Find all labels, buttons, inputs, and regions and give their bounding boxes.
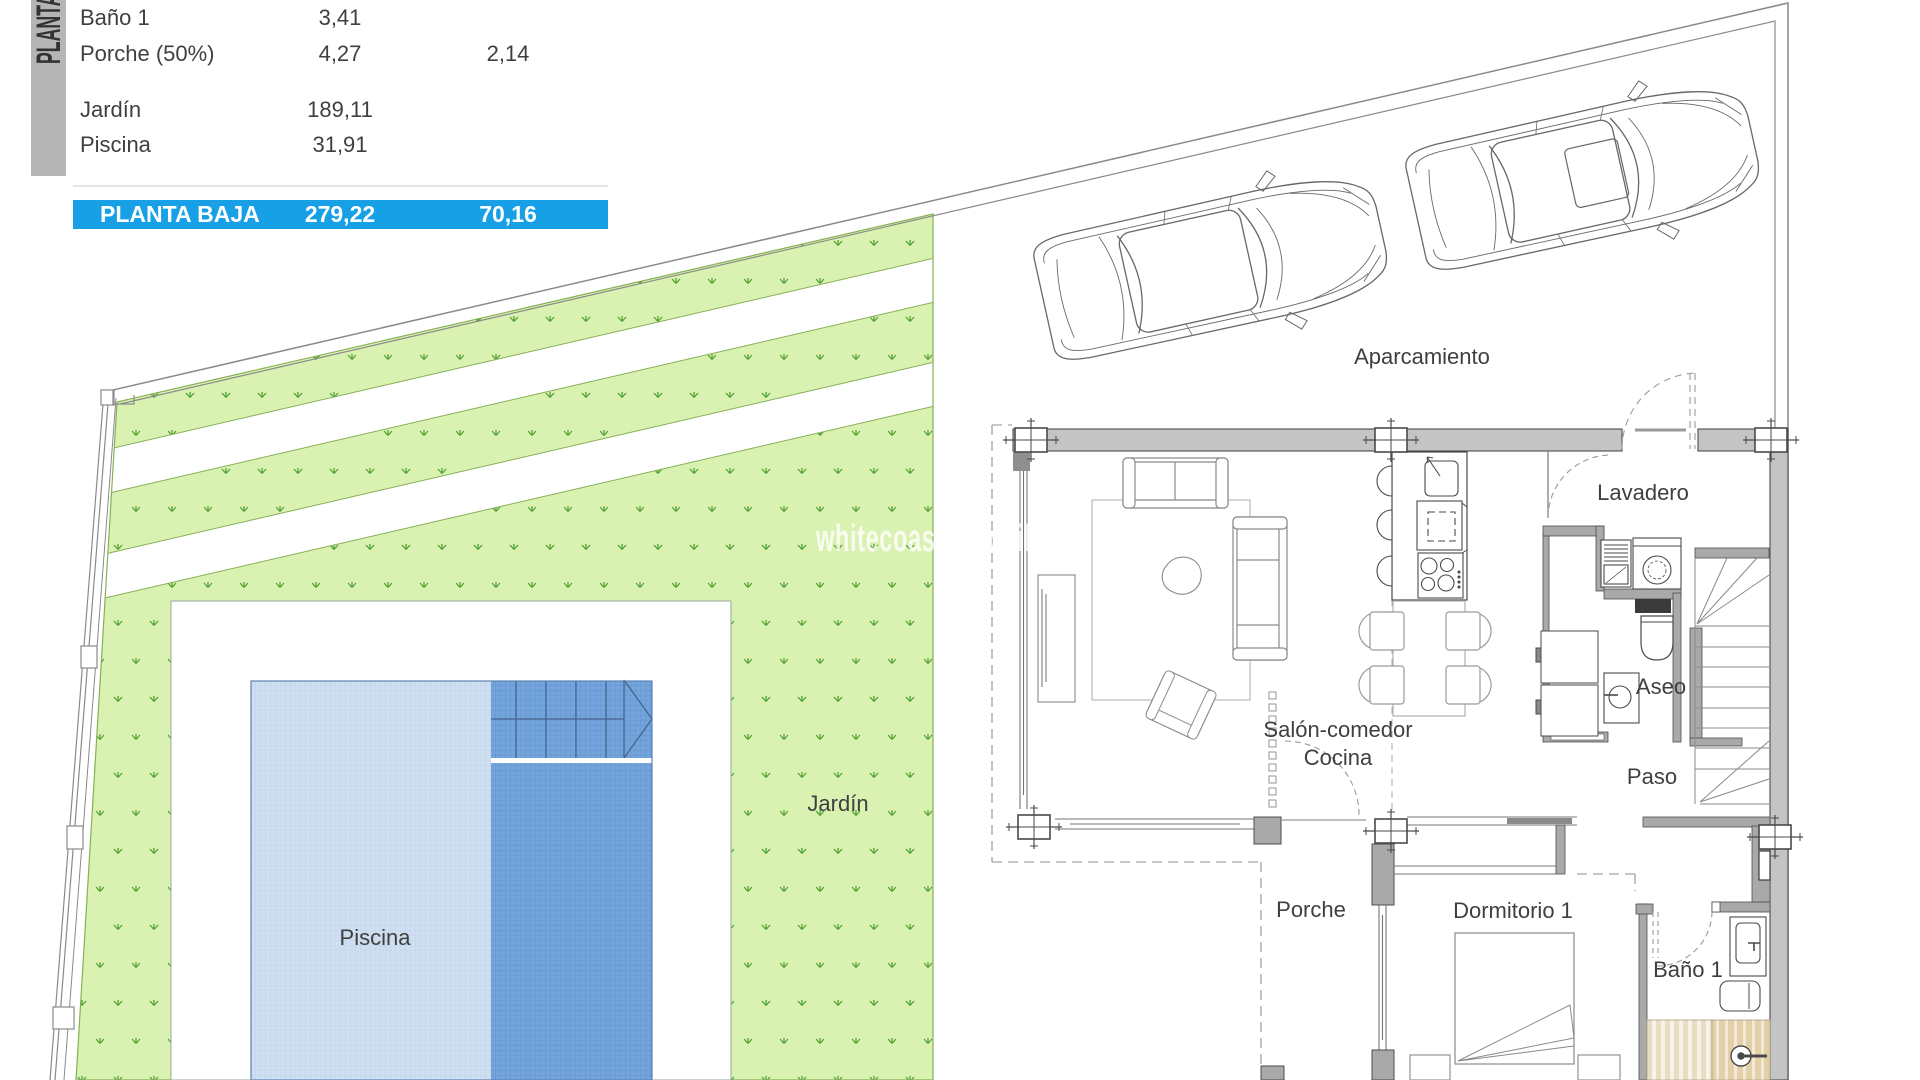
svg-text:Dormitorio 1: Dormitorio 1 [1453,898,1573,923]
svg-text:Jardín: Jardín [80,97,141,122]
svg-text:Cocina: Cocina [1304,745,1373,770]
svg-text:PLANTA BAJA: PLANTA BAJA [100,201,260,227]
svg-text:Porche (50%): Porche (50%) [80,41,215,66]
svg-text:Piscina: Piscina [340,925,412,950]
svg-text:Aparcamiento: Aparcamiento [1354,344,1490,369]
svg-text:189,11: 189,11 [307,97,373,122]
svg-text:Lavadero: Lavadero [1597,480,1689,505]
svg-text:Baño 1: Baño 1 [1653,957,1723,982]
svg-text:whitecoastinmobiliaria: whitecoastinmobiliaria [815,516,1083,559]
svg-text:Piscina: Piscina [80,132,152,157]
svg-text:3,41: 3,41 [319,5,362,30]
svg-text:Aseo: Aseo [1636,674,1686,699]
svg-text:Jardín: Jardín [807,791,868,816]
svg-text:70,16: 70,16 [479,201,537,227]
svg-text:PLANTA BAJA: PLANTA BAJA [29,0,68,64]
svg-text:4,27: 4,27 [319,41,362,66]
svg-text:Porche: Porche [1276,897,1346,922]
svg-text:Salón-comedor: Salón-comedor [1263,717,1412,742]
svg-text:Baño 1: Baño 1 [80,5,150,30]
svg-text:2,14: 2,14 [487,41,530,66]
svg-text:Paso: Paso [1627,764,1677,789]
svg-text:31,91: 31,91 [312,132,367,157]
svg-text:279,22: 279,22 [305,201,375,227]
